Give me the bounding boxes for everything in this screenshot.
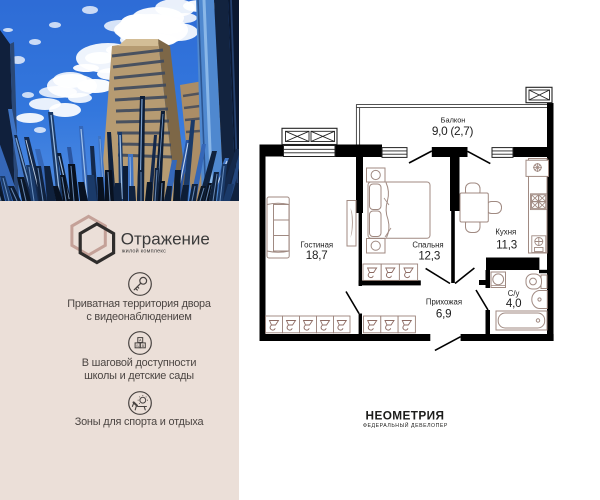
svg-text:4,0: 4,0 [506, 297, 522, 310]
svg-text:12,3: 12,3 [418, 250, 440, 263]
svg-text:11,3: 11,3 [496, 239, 517, 252]
svg-text:Спальня: Спальня [412, 240, 443, 249]
svg-text:9,0 (2,7): 9,0 (2,7) [432, 124, 474, 138]
svg-text:Прихожая: Прихожая [426, 298, 462, 307]
svg-text:6,9: 6,9 [436, 308, 452, 321]
svg-text:18,7: 18,7 [306, 249, 328, 262]
svg-text:ФЕДЕРАЛЬНЫЙ ДЕВЕЛОПЕР: ФЕДЕРАЛЬНЫЙ ДЕВЕЛОПЕР [363, 421, 448, 429]
svg-text:Балкон: Балкон [441, 115, 466, 124]
svg-text:НЕОМЕТРИЯ: НЕОМЕТРИЯ [366, 409, 445, 423]
svg-text:Кухня: Кухня [495, 228, 516, 237]
